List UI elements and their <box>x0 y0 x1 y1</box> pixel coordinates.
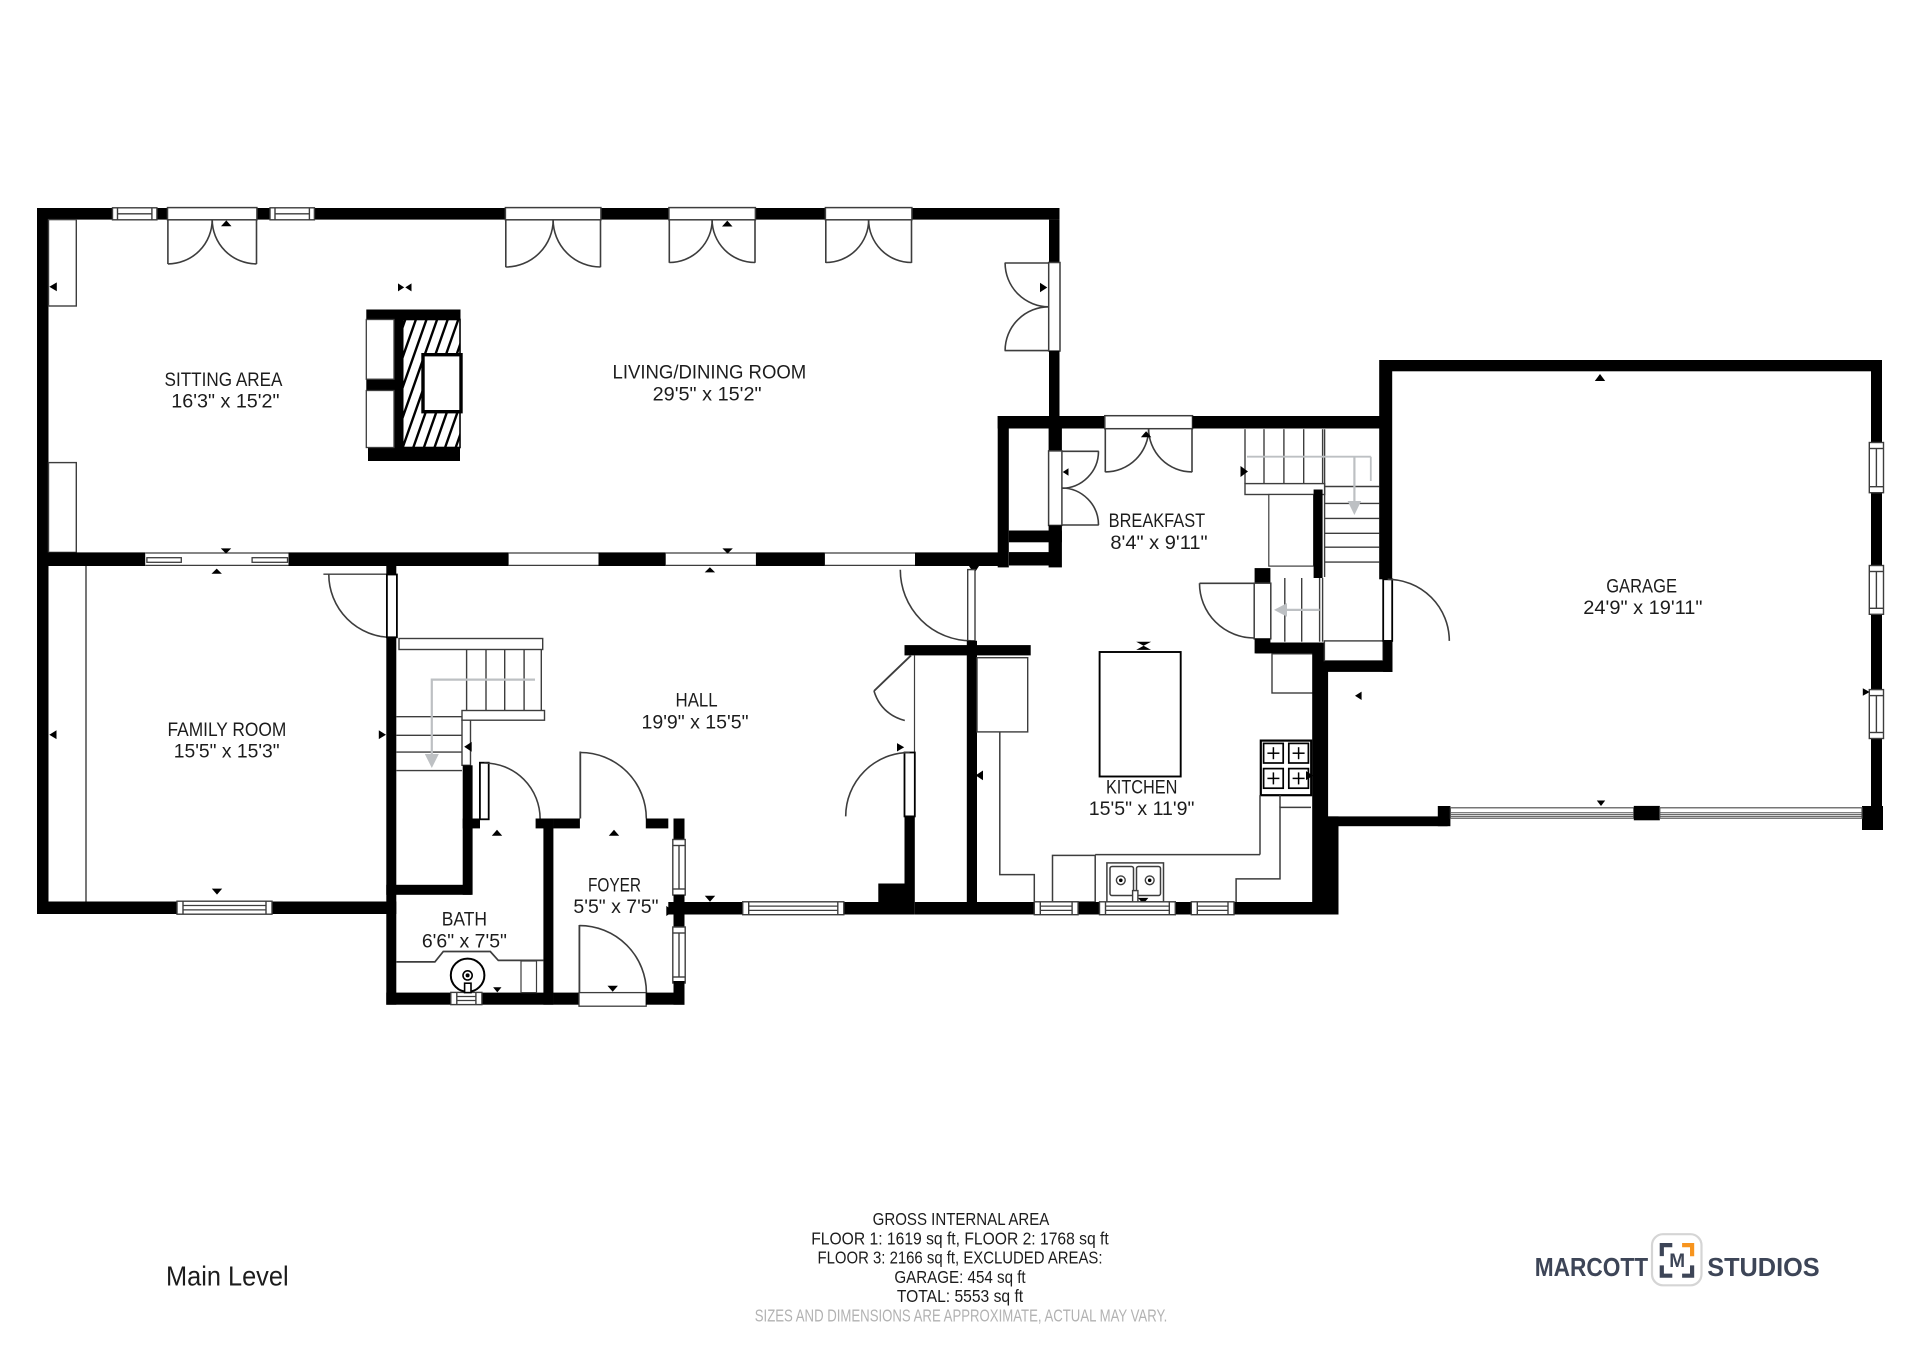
svg-text:SITTING AREA: SITTING AREA <box>165 370 283 391</box>
svg-text:5'5" x 7'5": 5'5" x 7'5" <box>573 897 658 918</box>
svg-text:TOTAL: 5553 sq ft: TOTAL: 5553 sq ft <box>897 1286 1023 1306</box>
svg-text:29'5" x 15'2": 29'5" x 15'2" <box>653 384 762 405</box>
svg-text:SIZES AND DIMENSIONS ARE APPRO: SIZES AND DIMENSIONS ARE APPROXIMATE, AC… <box>755 1305 1168 1325</box>
svg-text:FOYER: FOYER <box>588 876 641 897</box>
svg-text:M: M <box>1669 1251 1685 1272</box>
svg-text:15'5" x 11'9": 15'5" x 11'9" <box>1089 799 1195 820</box>
svg-text:STUDIOS: STUDIOS <box>1707 1252 1820 1282</box>
svg-text:16'3" x 15'2": 16'3" x 15'2" <box>171 392 279 413</box>
svg-text:GARAGE: GARAGE <box>1606 577 1677 598</box>
svg-text:24'9" x 19'11": 24'9" x 19'11" <box>1583 598 1702 619</box>
svg-text:HALL: HALL <box>676 691 718 712</box>
svg-text:BREAKFAST: BREAKFAST <box>1109 511 1206 532</box>
svg-text:6'6" x 7'5": 6'6" x 7'5" <box>422 931 507 952</box>
svg-text:FLOOR 1: 1619 sq ft, FLOOR 2:: FLOOR 1: 1619 sq ft, FLOOR 2: 1768 sq ft <box>811 1228 1109 1248</box>
svg-text:KITCHEN: KITCHEN <box>1106 778 1178 799</box>
svg-text:19'9" x 15'5": 19'9" x 15'5" <box>642 712 749 733</box>
svg-text:GARAGE: 454 sq ft: GARAGE: 454 sq ft <box>894 1267 1025 1287</box>
svg-text:FAMILY ROOM: FAMILY ROOM <box>168 720 287 741</box>
svg-text:15'5" x 15'3": 15'5" x 15'3" <box>174 742 280 763</box>
svg-text:BATH: BATH <box>442 910 487 931</box>
svg-text:Main Level: Main Level <box>166 1260 289 1291</box>
svg-text:LIVING/DINING ROOM: LIVING/DINING ROOM <box>613 363 807 384</box>
svg-text:FLOOR 3: 2166 sq ft, EXCLUDED: FLOOR 3: 2166 sq ft, EXCLUDED AREAS: <box>818 1248 1103 1268</box>
svg-text:8'4" x 9'11": 8'4" x 9'11" <box>1110 533 1207 554</box>
svg-text:GROSS INTERNAL AREA: GROSS INTERNAL AREA <box>873 1209 1050 1229</box>
svg-text:MARCOTT: MARCOTT <box>1535 1252 1648 1282</box>
